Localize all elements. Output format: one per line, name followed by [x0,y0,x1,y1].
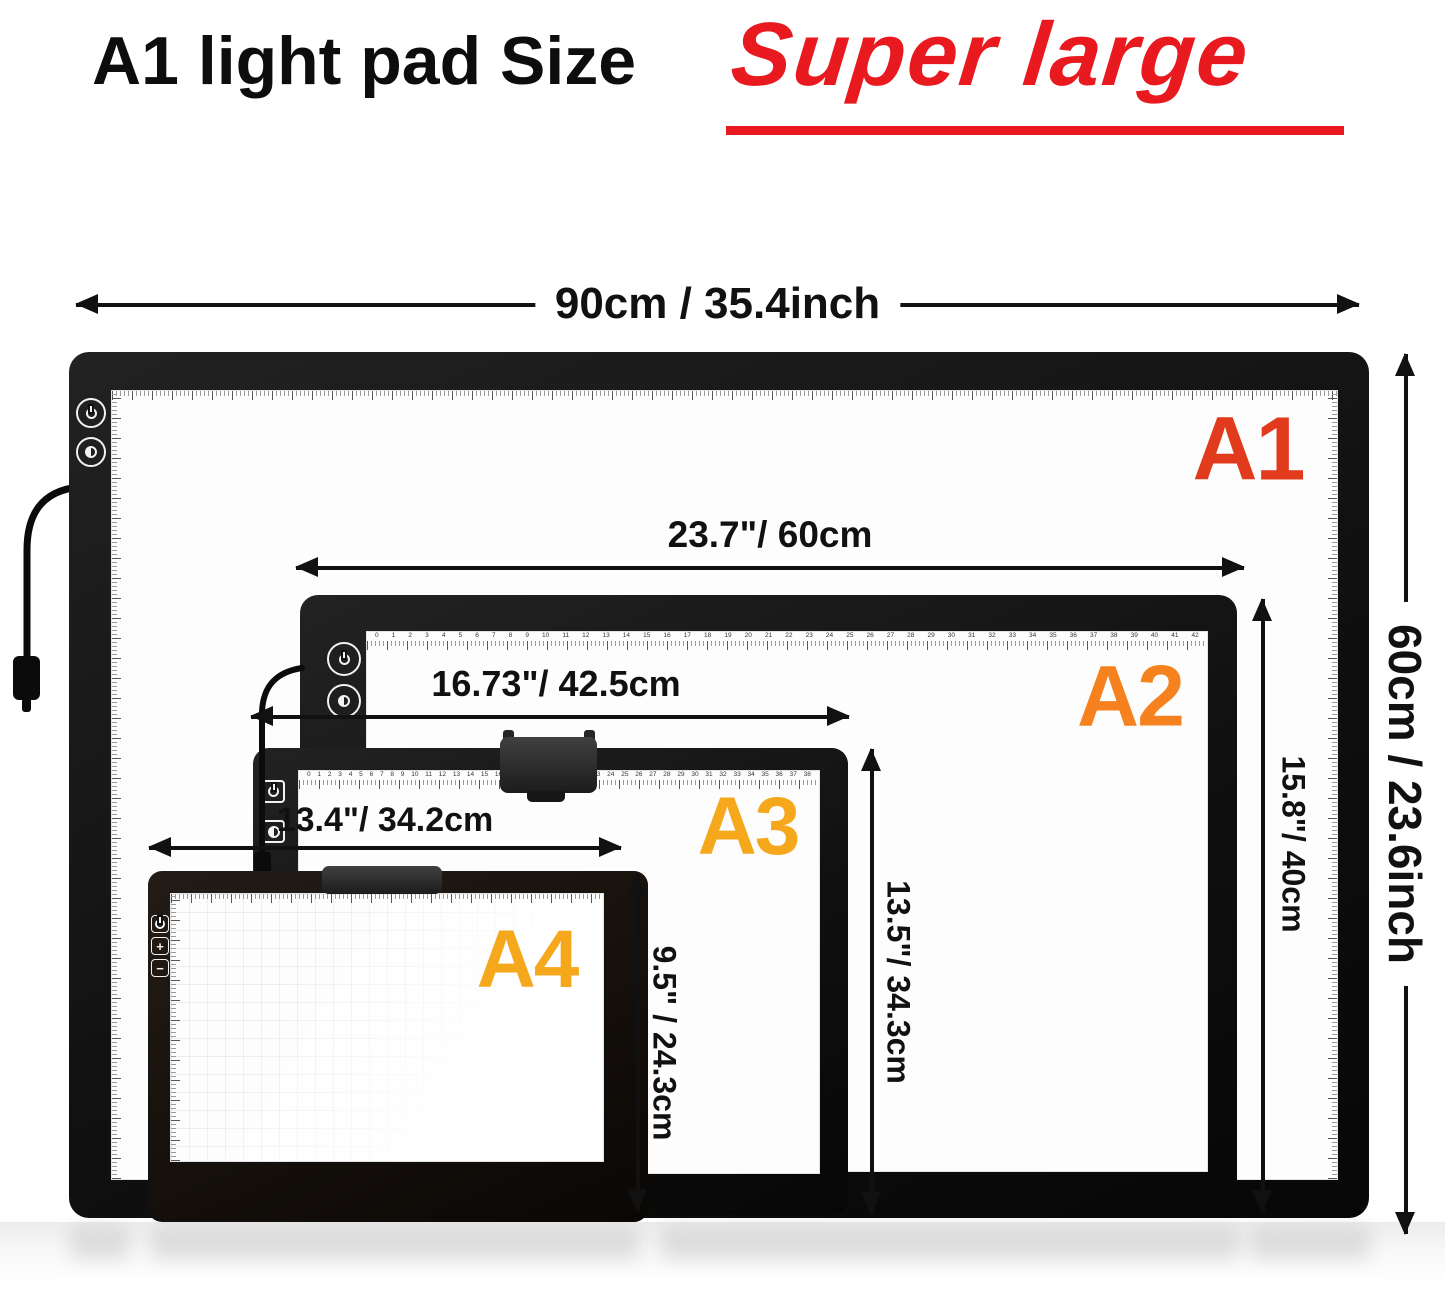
a1-brightness-button [76,437,106,467]
a4-brightness-up-button: + [151,937,169,955]
page-title-highlight: Super large [727,4,1255,107]
a2-ruler-numbers: 0123456789101112131415161718192021222324… [375,633,1199,640]
a1-top-ruler [112,391,1337,400]
power-icon [339,654,350,665]
label-a2: A2 [1077,648,1183,747]
minus-icon: − [156,962,164,975]
dimension-label-a3-width: 16.73"/ 42.5cm [431,663,680,705]
a2-power-button [327,642,361,676]
a4-paper-clip [322,866,442,894]
page-title: A1 light pad Size [92,22,636,100]
a4-top-ruler [171,894,603,905]
a1-left-ruler [112,391,121,1179]
power-icon [86,408,97,419]
a1-power-button [76,398,106,428]
dimension-label-a2-height: 15.8"/ 40cm [1275,755,1312,932]
a2-brightness-button [327,684,361,718]
dimension-label-a4-height: 9.5" / 24.3cm [646,945,683,1140]
brightness-icon [85,446,97,458]
label-a1: A1 [1192,399,1303,502]
a3-paper-clip [500,737,597,793]
a3-clip-lip [527,791,565,802]
a4-left-ruler [171,894,182,1161]
product-size-diagram: A1 light pad Size Super large 0123456789… [0,0,1445,1304]
a4-brightness-down-button: − [151,959,169,977]
floor-reflection [0,1222,1445,1304]
dimension-label-a1-height: 60cm / 23.6inch [1378,602,1432,986]
a2-power-cable [240,660,320,875]
power-icon [155,919,165,929]
title-underline [726,126,1344,135]
plus-icon: + [156,940,164,953]
a1-right-ruler [1328,391,1337,1179]
dimension-label-a2-width: 23.7"/ 60cm [668,514,873,556]
brightness-icon [338,695,350,707]
label-a3: A3 [698,780,799,874]
dimension-label-a3-height: 13.5"/ 34.3cm [880,880,917,1084]
dimension-label-a1-width: 90cm / 35.4inch [535,279,900,329]
a4-power-button [151,915,169,933]
dimension-label-a4-width: 13.4"/ 34.2cm [277,801,494,840]
label-a4: A4 [477,913,578,1007]
